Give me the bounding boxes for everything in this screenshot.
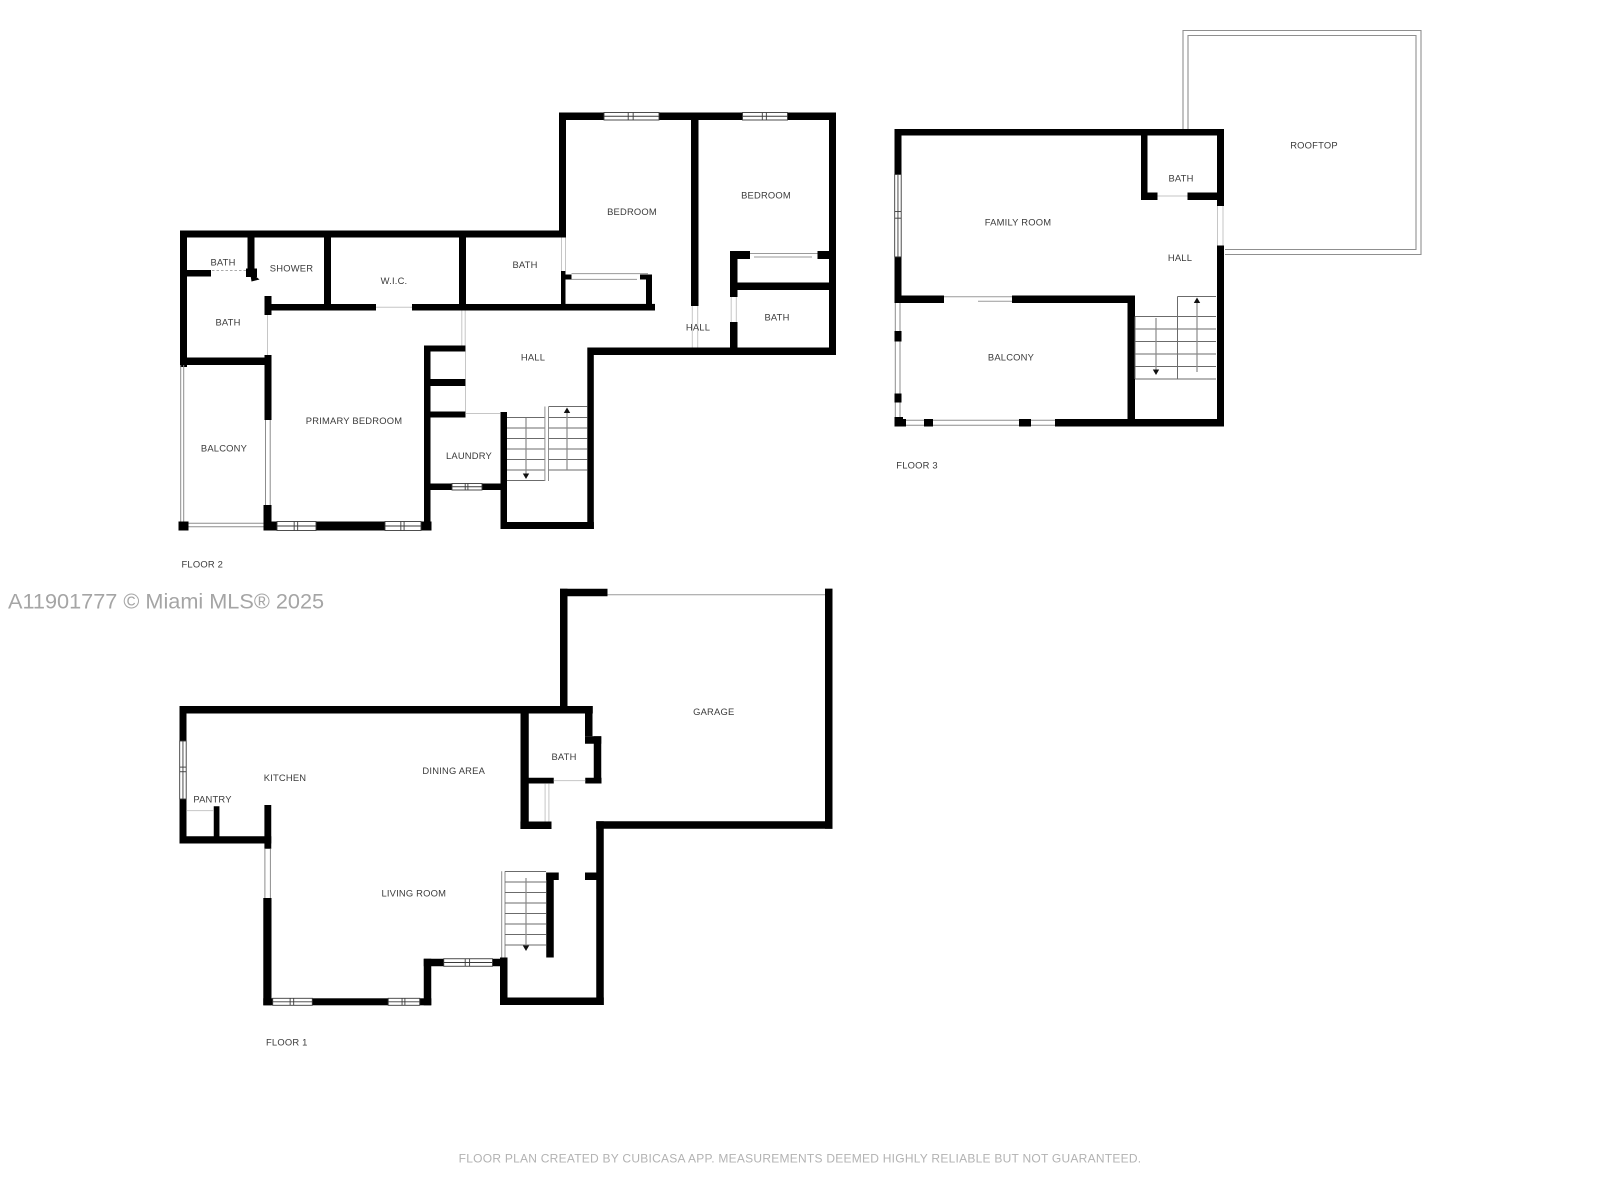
svg-text:ROOFTOP: ROOFTOP	[1290, 140, 1338, 151]
svg-text:BATH: BATH	[210, 257, 235, 268]
svg-text:PRIMARY BEDROOM: PRIMARY BEDROOM	[306, 415, 402, 426]
svg-text:FAMILY ROOM: FAMILY ROOM	[985, 217, 1051, 228]
svg-text:FLOOR 1: FLOOR 1	[266, 1037, 308, 1048]
svg-text:HALL: HALL	[686, 322, 710, 333]
svg-text:FLOOR 2: FLOOR 2	[182, 559, 224, 570]
svg-text:BATH: BATH	[512, 259, 537, 270]
svg-text:LAUNDRY: LAUNDRY	[446, 450, 493, 461]
svg-text:A11901777 © Miami MLS® 2025: A11901777 © Miami MLS® 2025	[8, 589, 324, 614]
svg-text:W.I.C.: W.I.C.	[381, 275, 408, 286]
svg-text:HALL: HALL	[1168, 252, 1192, 263]
svg-text:SHOWER: SHOWER	[270, 263, 313, 274]
svg-text:BATH: BATH	[551, 751, 576, 762]
svg-text:BATH: BATH	[764, 312, 789, 323]
svg-text:BALCONY: BALCONY	[988, 352, 1035, 363]
svg-text:FLOOR 3: FLOOR 3	[896, 460, 938, 471]
svg-text:FLOOR PLAN CREATED BY CUBICASA: FLOOR PLAN CREATED BY CUBICASA APP. MEAS…	[459, 1152, 1142, 1166]
svg-text:KITCHEN: KITCHEN	[264, 772, 307, 783]
svg-text:HALL: HALL	[521, 352, 545, 363]
svg-text:BALCONY: BALCONY	[201, 443, 248, 454]
svg-text:DINING AREA: DINING AREA	[422, 765, 485, 776]
svg-text:PANTRY: PANTRY	[193, 794, 232, 805]
svg-text:LIVING ROOM: LIVING ROOM	[381, 888, 446, 899]
svg-text:GARAGE: GARAGE	[693, 706, 734, 717]
svg-text:BATH: BATH	[215, 317, 240, 328]
svg-text:BATH: BATH	[1168, 173, 1193, 184]
svg-text:BEDROOM: BEDROOM	[741, 190, 791, 201]
svg-text:BEDROOM: BEDROOM	[607, 206, 657, 217]
